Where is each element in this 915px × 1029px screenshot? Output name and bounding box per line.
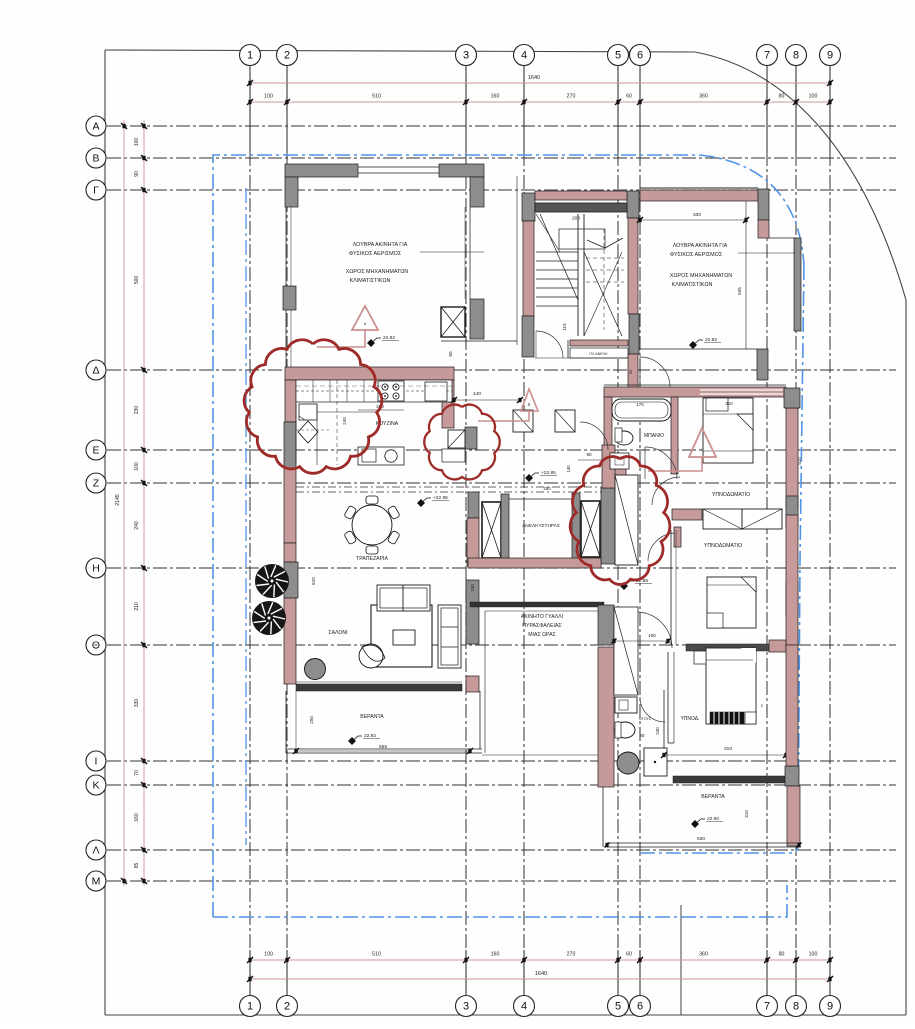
svg-text:9: 9 (827, 1001, 833, 1013)
svg-text:B: B (528, 402, 531, 407)
svg-text:530: 530 (697, 836, 705, 842)
svg-text:510: 510 (372, 952, 381, 958)
svg-text:250: 250 (309, 716, 314, 724)
svg-text:3: 3 (463, 1001, 469, 1013)
svg-text:170: 170 (636, 402, 644, 407)
svg-text:ΒΕΡΑΝΤΑ: ΒΕΡΑΝΤΑ (701, 794, 725, 800)
svg-text:7: 7 (764, 1001, 770, 1013)
svg-text:210: 210 (134, 602, 140, 611)
svg-text:360: 360 (699, 94, 708, 100)
svg-text:270: 270 (567, 952, 576, 958)
svg-text:60: 60 (626, 94, 632, 100)
svg-text:Z: Z (93, 478, 100, 490)
svg-text:270: 270 (567, 94, 576, 100)
svg-text:200: 200 (572, 216, 580, 222)
svg-text:80: 80 (779, 94, 785, 100)
svg-text:Γ: Γ (93, 185, 99, 197)
svg-text:310: 310 (724, 746, 732, 752)
svg-text:a: a (701, 447, 704, 452)
svg-text:510: 510 (797, 457, 802, 465)
svg-text:100: 100 (264, 94, 273, 100)
svg-text:250: 250 (543, 486, 551, 491)
svg-text:Λ: Λ (92, 845, 99, 857)
svg-text:Δ: Δ (92, 365, 99, 377)
svg-text:ΜΙΑΣ ΩΡΑΣ: ΜΙΑΣ ΩΡΑΣ (528, 632, 556, 638)
svg-text:ΚΛΙΜΑΤΙΣΤΙΚΩΝ: ΚΛΙΜΑΤΙΣΤΙΚΩΝ (672, 282, 713, 288)
svg-text:2145: 2145 (115, 494, 121, 506)
svg-text:4: 4 (521, 50, 527, 62)
svg-text:ΛΟΥΒΡΑ ΑΚΙΝΗΤΑ ΓΙΑ: ΛΟΥΒΡΑ ΑΚΙΝΗΤΑ ΓΙΑ (673, 243, 728, 249)
svg-text:9: 9 (827, 50, 833, 62)
svg-text:1640: 1640 (535, 971, 547, 977)
svg-text:330: 330 (134, 699, 140, 708)
svg-text:240: 240 (134, 521, 140, 530)
svg-text:E: E (92, 445, 99, 457)
svg-text:4: 4 (521, 1001, 527, 1013)
svg-text:100: 100 (134, 462, 140, 471)
svg-text:ΑΚΙΝΗΤΟ ΓΥΑΛΛΙ: ΑΚΙΝΗΤΟ ΓΥΑΛΛΙ (521, 614, 563, 620)
svg-text:240: 240 (655, 727, 660, 735)
svg-text:ΥΠΝΟΔ.: ΥΠΝΟΔ. (680, 716, 699, 722)
svg-text:ΥΠΝΟΔΩΜΑΤΙΟ: ΥΠΝΟΔΩΜΑΤΙΟ (704, 543, 742, 549)
svg-text:ΒΕΡΑΝΤΑ: ΒΕΡΑΝΤΑ (360, 714, 384, 720)
svg-text:80: 80 (779, 952, 785, 958)
svg-text:ΚΛΙΜΑΤΙΣΤΙΚΩΝ: ΚΛΙΜΑΤΙΣΤΙΚΩΝ (350, 278, 391, 284)
svg-text:ΧΩΡΟΣ ΜΗΧΑΝΗΜΑΤΩΝ: ΧΩΡΟΣ ΜΗΧΑΝΗΜΑΤΩΝ (670, 273, 733, 279)
svg-text:60: 60 (628, 369, 633, 374)
svg-text:1: 1 (247, 1001, 253, 1013)
svg-text:ΠΥΡΑΣΦΑΛΕΙΑΣ: ΠΥΡΑΣΦΑΛΕΙΑΣ (522, 623, 561, 629)
svg-text:60: 60 (448, 351, 453, 357)
svg-text:ΣΑΛΟΝΙ: ΣΑΛΟΝΙ (328, 630, 347, 636)
svg-text:ΦΥΣΙΚΟΣ ΑΕΡΙΣΜΟΣ: ΦΥΣΙΚΟΣ ΑΕΡΙΣΜΟΣ (349, 251, 402, 257)
svg-text:85: 85 (134, 863, 140, 869)
svg-text:140: 140 (566, 465, 571, 473)
svg-text:8: 8 (793, 1001, 799, 1013)
svg-text:H: H (92, 563, 100, 575)
svg-text:K: K (92, 780, 99, 792)
svg-text:100: 100 (470, 584, 475, 592)
svg-text:160: 160 (134, 813, 140, 822)
svg-text:A: A (92, 121, 99, 133)
svg-text:3: 3 (463, 50, 469, 62)
svg-text:ΦΥΣΙΚΟΣ ΑΕΡΙΣΜΟΣ: ΦΥΣΙΚΟΣ ΑΕΡΙΣΜΟΣ (670, 252, 723, 258)
svg-text:555: 555 (379, 744, 387, 750)
svg-text:620: 620 (311, 577, 316, 585)
svg-text:22.60: 22.60 (707, 816, 719, 822)
svg-text:500: 500 (134, 276, 140, 285)
svg-text:+22.95: +22.95 (433, 495, 448, 501)
svg-text:ΝΤΟΥΣ: ΝΤΟΥΣ (639, 717, 652, 721)
svg-text:+22.85: +22.85 (541, 470, 556, 476)
svg-text:a: a (364, 321, 367, 326)
svg-text:ΑΝΕΛΚΥΣΤΗΡΑΣ: ΑΝΕΛΚΥΣΤΗΡΑΣ (522, 523, 560, 529)
svg-text:6: 6 (637, 50, 643, 62)
svg-text:5: 5 (615, 1001, 621, 1013)
svg-text:5: 5 (615, 50, 621, 62)
svg-text:2: 2 (284, 50, 290, 62)
svg-text:1: 1 (247, 50, 253, 62)
svg-text:160: 160 (491, 952, 500, 958)
svg-text:22.82: 22.82 (383, 335, 395, 341)
svg-text:100: 100 (134, 138, 140, 147)
svg-text:ΤΡΑΠΕΖΑΡΙΑ: ΤΡΑΠΕΖΑΡΙΑ (356, 556, 388, 562)
svg-text:60: 60 (626, 952, 632, 958)
svg-text:100: 100 (809, 94, 818, 100)
svg-text:230: 230 (134, 406, 140, 415)
svg-text:1640: 1640 (528, 75, 540, 81)
svg-text:100: 100 (648, 633, 656, 638)
svg-text:22.82: 22.82 (705, 337, 717, 343)
svg-text:90: 90 (640, 733, 645, 738)
svg-text:360: 360 (699, 952, 708, 958)
svg-text:ΠΛ.ΑΝΕΛΚ.: ΠΛ.ΑΝΕΛΚ. (589, 352, 608, 356)
svg-text:2: 2 (284, 1001, 290, 1013)
svg-text:ΛΟΥΒΡΑ ΑΚΙΝΗΤΑ ΓΙΑ: ΛΟΥΒΡΑ ΑΚΙΝΗΤΑ ΓΙΑ (353, 242, 408, 248)
svg-text:ΧΩΡΟΣ ΜΗΧΑΝΗΜΑΤΩΝ: ΧΩΡΟΣ ΜΗΧΑΝΗΜΑΤΩΝ (346, 269, 409, 275)
svg-text:B: B (92, 153, 99, 165)
svg-text:8: 8 (793, 50, 799, 62)
svg-text:M: M (92, 876, 101, 888)
svg-text:Θ: Θ (92, 640, 100, 652)
svg-text:505: 505 (737, 287, 742, 295)
svg-text:115: 115 (562, 323, 567, 331)
svg-text:7: 7 (764, 50, 770, 62)
svg-text:90: 90 (586, 452, 592, 457)
svg-text:510: 510 (372, 94, 381, 100)
svg-text:ΥΠΝΟΔΩΜΑΤΙΟ: ΥΠΝΟΔΩΜΑΤΙΟ (712, 492, 750, 498)
svg-text:I: I (95, 756, 98, 768)
svg-text:6: 6 (637, 1001, 643, 1013)
svg-text:140: 140 (473, 391, 481, 397)
svg-text:70: 70 (134, 770, 140, 776)
svg-text:100: 100 (809, 952, 818, 958)
svg-text:100: 100 (264, 952, 273, 958)
svg-text:310: 310 (725, 401, 733, 406)
svg-text:240: 240 (342, 417, 347, 425)
svg-text:ΜΠΑΝΙΟ: ΜΠΑΝΙΟ (644, 433, 664, 439)
svg-text:22.92: 22.92 (364, 733, 376, 739)
svg-text:160: 160 (491, 94, 500, 100)
svg-text:330: 330 (693, 212, 701, 218)
svg-text:310: 310 (744, 810, 749, 818)
svg-text:90: 90 (134, 171, 140, 177)
